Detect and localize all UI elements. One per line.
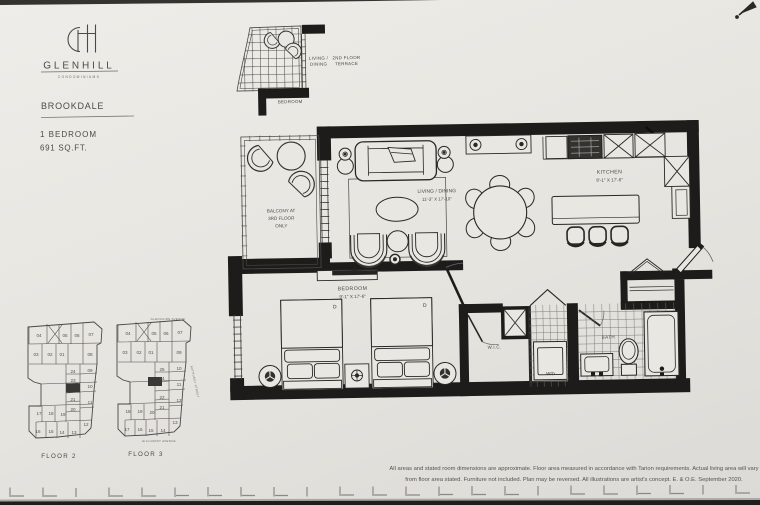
svg-text:8'-1" X 17'-6": 8'-1" X 17'-6" [596,177,623,182]
svg-text:BALCONY AT: BALCONY AT [267,208,296,213]
svg-text:LIVING / DINING: LIVING / DINING [417,188,456,195]
svg-text:08: 08 [87,352,93,357]
svg-text:1 BEDROOM: 1 BEDROOM [40,130,97,139]
svg-text:BATHURST STREET: BATHURST STREET [190,365,201,398]
svg-text:GLENCAIRN AVENUE: GLENCAIRN AVENUE [151,317,186,321]
svg-text:10: 10 [87,384,93,389]
svg-text:W.I.C.: W.I.C. [488,344,502,349]
svg-text:18: 18 [48,411,54,416]
svg-text:BROOKDALE: BROOKDALE [41,101,104,111]
svg-text:GLENHILL: GLENHILL [43,61,115,72]
svg-text:04: 04 [36,333,42,338]
svg-text:2ND FLOOR: 2ND FLOOR [332,55,360,60]
svg-text:11: 11 [88,400,93,405]
svg-text:12: 12 [176,398,182,403]
svg-text:KITCHEN: KITCHEN [597,169,623,175]
svg-text:BATH: BATH [602,334,616,339]
svg-text:FLOOR 3: FLOOR 3 [128,451,164,458]
svg-text:12: 12 [83,422,89,427]
svg-text:01: 01 [148,350,154,355]
svg-text:CONDOMINIUMS: CONDOMINIUMS [58,75,100,79]
svg-text:05: 05 [62,333,68,338]
svg-text:02: 02 [136,350,142,355]
svg-text:13: 13 [172,420,178,425]
svg-text:20: 20 [70,407,76,412]
svg-text:09: 09 [176,350,182,355]
svg-text:from floor area stated. Furnit: from floor area stated. Furniture not in… [405,477,743,483]
svg-text:14: 14 [59,430,65,435]
svg-text:BEDROOM: BEDROOM [278,99,303,104]
svg-text:17: 17 [36,411,42,416]
svg-text:24: 24 [70,369,76,374]
svg-text:05: 05 [151,331,157,336]
svg-text:15: 15 [48,429,54,434]
svg-text:BEDROOM: BEDROOM [338,286,368,293]
svg-text:691 SQ.FT.: 691 SQ.FT. [40,144,87,153]
svg-text:14: 14 [160,428,166,433]
svg-text:25: 25 [159,367,165,372]
svg-text:06: 06 [163,331,169,336]
svg-text:02: 02 [47,352,53,357]
svg-text:11: 11 [177,382,182,387]
svg-text:3RD FLOOR: 3RD FLOOR [268,216,295,221]
svg-text:07: 07 [177,330,183,335]
svg-text:16: 16 [35,429,41,434]
svg-text:21: 21 [159,405,165,410]
svg-text:W/D: W/D [546,371,555,376]
svg-text:10: 10 [176,366,182,371]
svg-text:16: 16 [137,427,143,432]
svg-text:01: 01 [59,352,65,357]
svg-text:D: D [423,303,427,309]
svg-text:03: 03 [122,350,128,355]
svg-text:03: 03 [33,352,39,357]
svg-text:09: 09 [87,368,93,373]
svg-text:D: D [333,304,337,310]
svg-text:20: 20 [149,410,155,415]
svg-text:13: 13 [71,430,77,435]
svg-text:HILLHURST AVENUE: HILLHURST AVENUE [142,439,176,443]
svg-text:22: 22 [159,395,165,400]
svg-text:19: 19 [60,412,66,417]
svg-text:19: 19 [137,409,143,414]
svg-text:DINING: DINING [310,61,328,66]
svg-text:9'-1" X 17'-6": 9'-1" X 17'-6" [339,294,366,299]
svg-text:18: 18 [125,409,131,414]
svg-text:All areas and stated room dime: All areas and stated room dimensions are… [389,466,758,472]
svg-text:LIVING /: LIVING / [309,55,329,60]
svg-text:ONLY: ONLY [275,223,287,228]
svg-text:17: 17 [124,427,130,432]
svg-text:04: 04 [125,331,131,336]
svg-text:24: 24 [159,376,165,381]
svg-text:15: 15 [148,428,154,433]
svg-text:TERRACE: TERRACE [335,61,358,66]
svg-text:07: 07 [88,332,94,337]
svg-text:21: 21 [70,397,76,402]
svg-text:23: 23 [70,378,76,383]
svg-text:06: 06 [74,333,80,338]
svg-text:11'-3" X 17'-10": 11'-3" X 17'-10" [422,196,452,202]
svg-text:FLOOR 2: FLOOR 2 [41,453,77,460]
